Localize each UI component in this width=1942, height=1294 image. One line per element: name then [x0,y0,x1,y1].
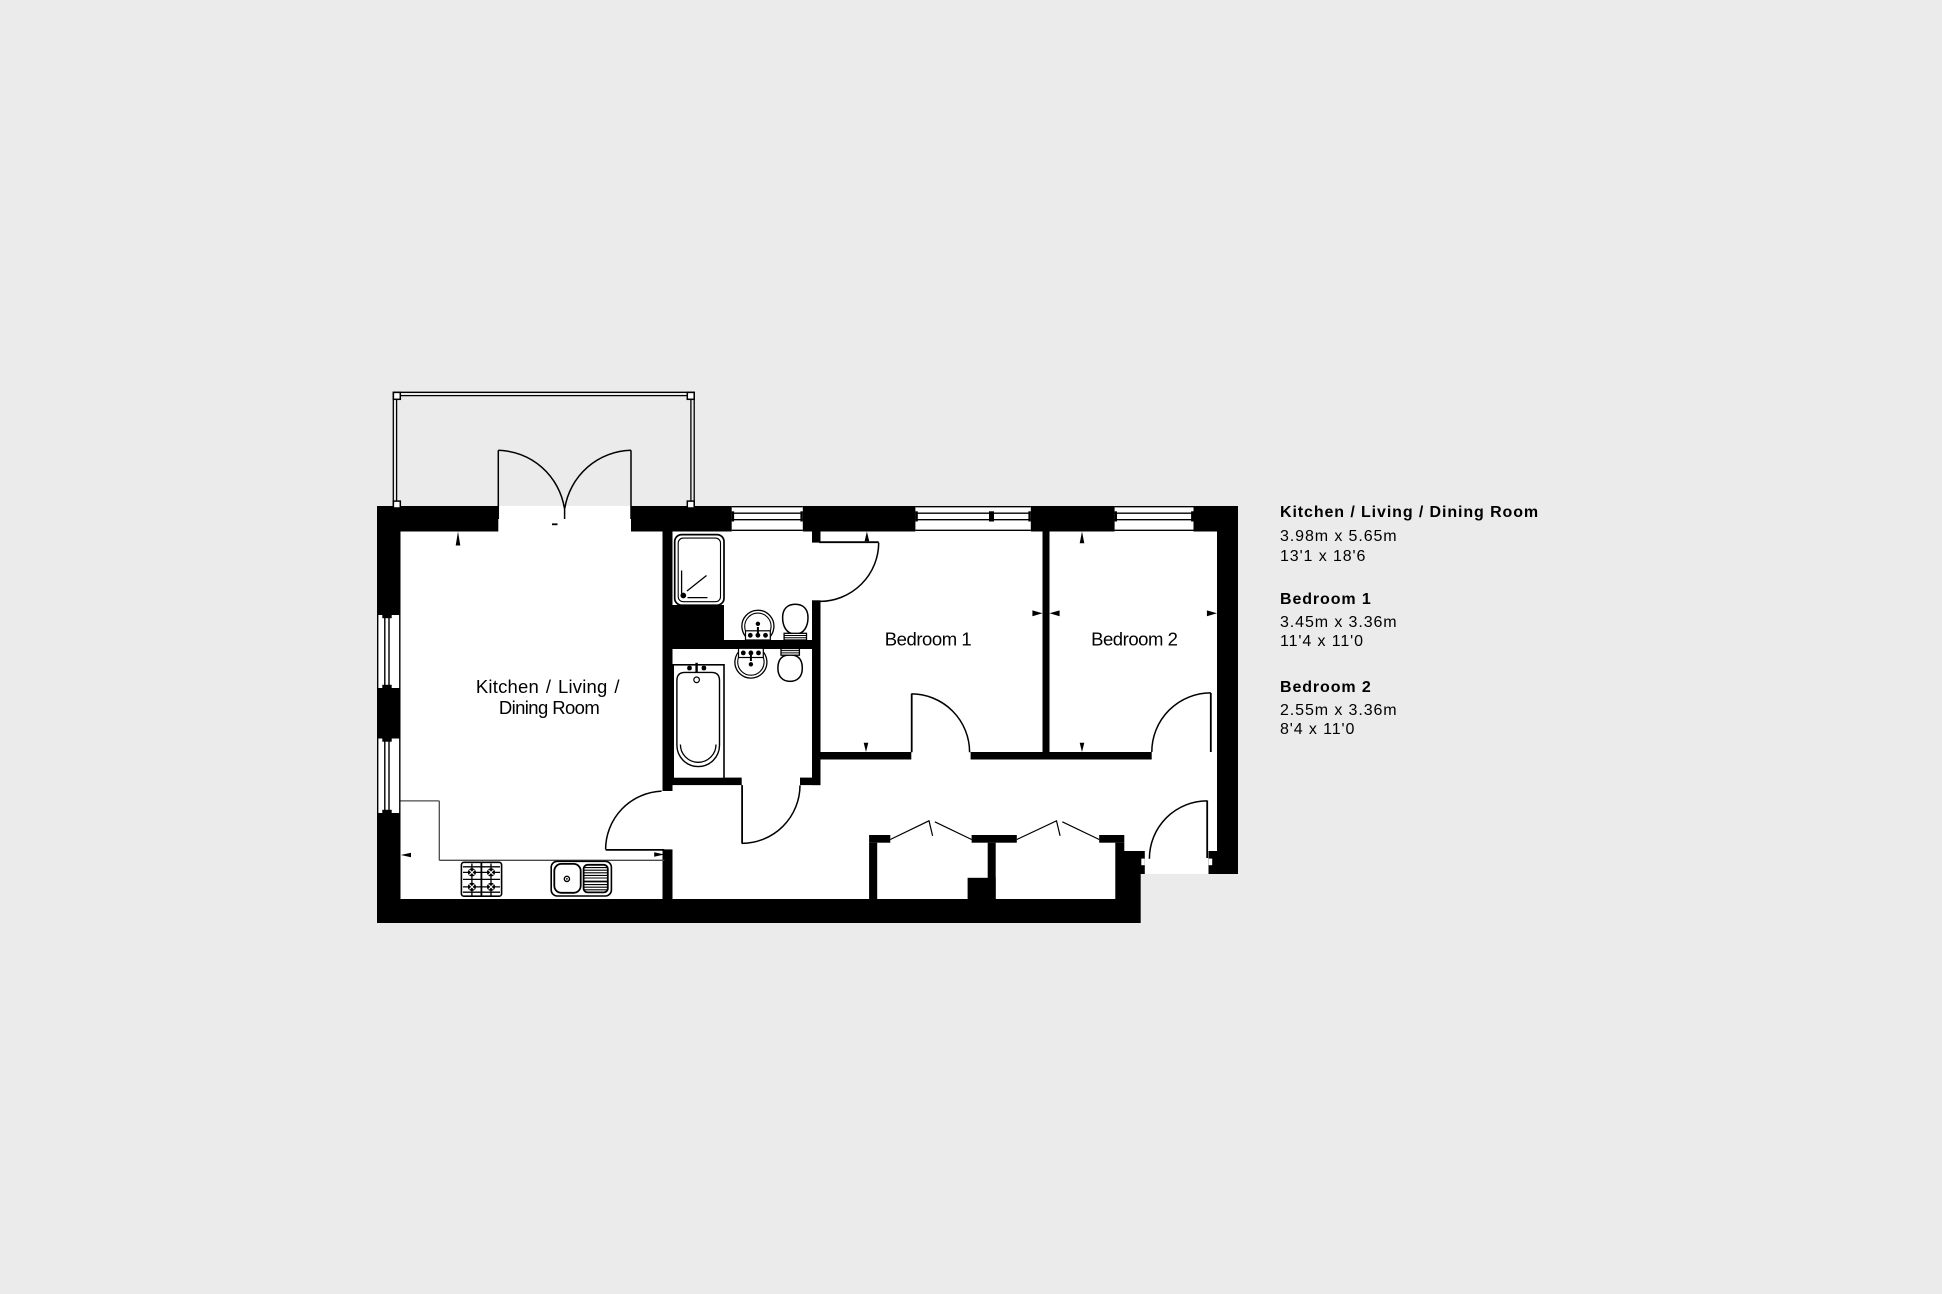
svg-text:Bedroom 1: Bedroom 1 [1280,591,1372,608]
svg-text:2.55m x 3.36m: 2.55m x 3.36m [1280,702,1398,719]
svg-text:Bedroom 2: Bedroom 2 [1280,679,1372,696]
svg-text:3.45m x 3.36m: 3.45m x 3.36m [1280,614,1398,631]
svg-text:Bedroom 1: Bedroom 1 [885,629,972,650]
svg-text:3.98m x 5.65m: 3.98m x 5.65m [1280,528,1398,545]
svg-text:Kitchen / Living / Dining Room: Kitchen / Living / Dining Room [1280,504,1539,521]
svg-text:8'4 x 11'0: 8'4 x 11'0 [1280,721,1355,738]
svg-text:Bedroom 2: Bedroom 2 [1091,629,1178,650]
svg-text:11'4 x 11'0: 11'4 x 11'0 [1280,633,1364,650]
svg-text:Kitchen / Living /: Kitchen / Living / [476,676,621,697]
svg-text:Dining Room: Dining Room [499,697,600,718]
svg-text:13'1 x 18'6: 13'1 x 18'6 [1280,548,1366,565]
